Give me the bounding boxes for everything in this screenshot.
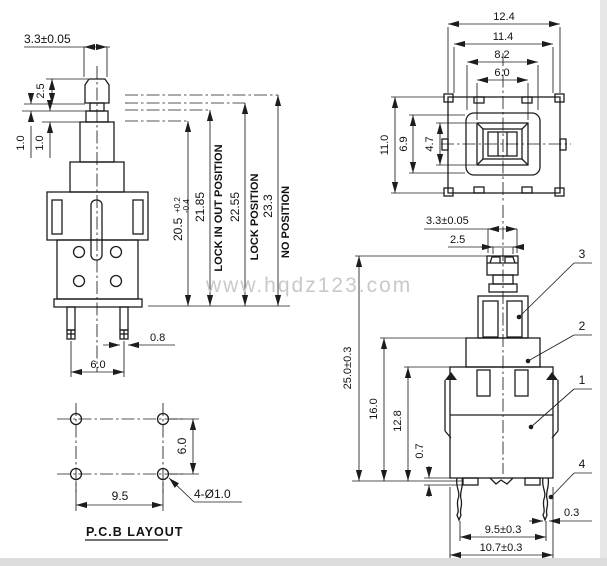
dim-label: 12.8	[392, 410, 404, 431]
front-view: 3.3±0.05 2.5 1.0 1.0	[15, 32, 292, 377]
pcb-layout: 6.0 9.5 4-Ø1.0 P.C.B LAYOUT	[57, 403, 242, 540]
side-view: 3.3±0.05 2.5 25.0±0.3 16.0 12.	[342, 205, 592, 559]
front-hole	[74, 276, 85, 287]
dim-label: 1.0	[34, 135, 46, 150]
callout-number: 1	[579, 373, 586, 387]
callout-number: 2	[579, 319, 586, 333]
front-body	[57, 240, 138, 299]
position-label-no: NO POSITION	[280, 186, 292, 258]
dim-label: 6.0	[90, 359, 105, 371]
dim-label: 3.3±0.05	[24, 32, 71, 46]
front-dim-pin-width: 0.8	[103, 332, 175, 345]
front-slot-center	[91, 200, 102, 260]
dim-label: 22.55	[228, 192, 242, 222]
switch-dimension-drawing: 3.3±0.05 2.5 1.0 1.0	[0, 0, 607, 566]
callout-number: 4	[579, 457, 586, 471]
dim-label: 2.5	[450, 234, 465, 246]
front-position-lines	[125, 95, 278, 121]
front-pin-right	[120, 307, 128, 330]
top-outer-square	[448, 97, 560, 193]
dim-label: 9.5±0.3	[485, 524, 522, 536]
dim-label: 20.5	[171, 217, 185, 241]
watermark-text: www.hqdz123.com	[205, 274, 412, 297]
dim-label: 3.3±0.05	[426, 215, 469, 227]
side-pin-left	[457, 478, 463, 520]
front-dim-cap-height: 2.5	[24, 79, 88, 104]
position-label-lock-in-out: LOCK IN OUT POSITION	[213, 144, 225, 271]
side-latch-right	[546, 372, 558, 380]
side-dim-pin-thickness: 0.3	[529, 507, 592, 521]
dim-tolerance-minus: -0.4	[182, 199, 191, 213]
dim-label: 6.0	[175, 437, 189, 454]
pcb-layout-title: P.C.B LAYOUT	[86, 525, 183, 539]
top-dim-button-width: 6.0	[477, 67, 528, 120]
pcb-dim-hole-pitch-h: 9.5	[76, 481, 163, 511]
dim-label: 0.7	[414, 443, 426, 458]
side-dim-cap-top-width: 2.5	[448, 234, 524, 254]
side-callout-3: 3	[519, 247, 592, 317]
side-callout-1: 1	[531, 373, 592, 427]
dim-label: 11.4	[493, 31, 514, 43]
dim-label: 2.5	[35, 83, 47, 98]
dim-label: 8.2	[494, 49, 509, 61]
dim-label: 12.4	[493, 11, 514, 23]
dim-label: 16.0	[368, 398, 380, 419]
dim-label: 0.8	[150, 332, 165, 344]
dim-label: 9.5	[112, 489, 129, 503]
side-callout-4: 4	[551, 457, 592, 497]
front-bottom-flange	[54, 299, 142, 307]
dim-label: 6.0	[494, 67, 509, 79]
side-body	[450, 367, 553, 478]
side-boss-left	[463, 478, 478, 485]
front-dim-neck-height: 1.0	[15, 96, 90, 158]
side-dim-pin-pitch: 9.5±0.3	[460, 521, 546, 541]
front-dim-travel: 20.5 +0.2 -0.4	[171, 121, 191, 306]
side-dim-body-width: 10.7±0.3	[450, 487, 553, 559]
pcb-hole-note: 4-Ø1.0	[169, 478, 242, 502]
side-callout-2: 2	[528, 319, 592, 361]
front-dim-pin-pitch: 6.0	[71, 341, 124, 377]
front-pin-left	[67, 307, 75, 330]
dim-label: 4.7	[424, 136, 436, 151]
position-label-lock: LOCK POSITION	[249, 174, 261, 261]
page-edge-bottom	[0, 558, 607, 566]
side-dim-body-height: 12.8	[392, 367, 450, 481]
pcb-dim-hole-pitch-v: 6.0	[170, 419, 199, 474]
side-dim-boss-height: 0.7	[414, 443, 463, 497]
callout-number: 3	[579, 247, 586, 261]
front-hole	[111, 276, 122, 287]
dim-label: 0.3	[564, 507, 579, 519]
pcb-holes	[71, 414, 169, 480]
side-latch-left	[445, 372, 457, 380]
front-slot-left	[52, 200, 62, 234]
page-edge-right	[600, 0, 607, 566]
dim-label: 1.0	[15, 135, 27, 150]
dim-label: 11.0	[379, 135, 391, 156]
side-boss-right	[525, 478, 540, 485]
dim-tolerance-plus: +0.2	[173, 197, 182, 213]
drawing-canvas: 3.3±0.05 2.5 1.0 1.0	[0, 0, 607, 566]
side-pin-right	[543, 478, 549, 520]
dim-label: 23.3	[261, 194, 275, 218]
top-dim-frame-width: 8.2	[467, 49, 538, 110]
dim-label: 25.0±0.3	[342, 347, 354, 390]
hole-note-label: 4-Ø1.0	[194, 487, 231, 501]
dim-label: 6.9	[398, 136, 410, 151]
front-outline	[47, 79, 148, 339]
top-view: 12.4 11.4 8.2 6.0 11.0 6.9	[379, 11, 571, 201]
front-hole	[111, 247, 122, 258]
top-outline	[442, 94, 566, 196]
front-slot-right	[133, 200, 143, 234]
dim-label: 21.85	[193, 192, 207, 222]
front-hole	[74, 247, 85, 258]
dim-label: 10.7±0.3	[480, 542, 523, 554]
